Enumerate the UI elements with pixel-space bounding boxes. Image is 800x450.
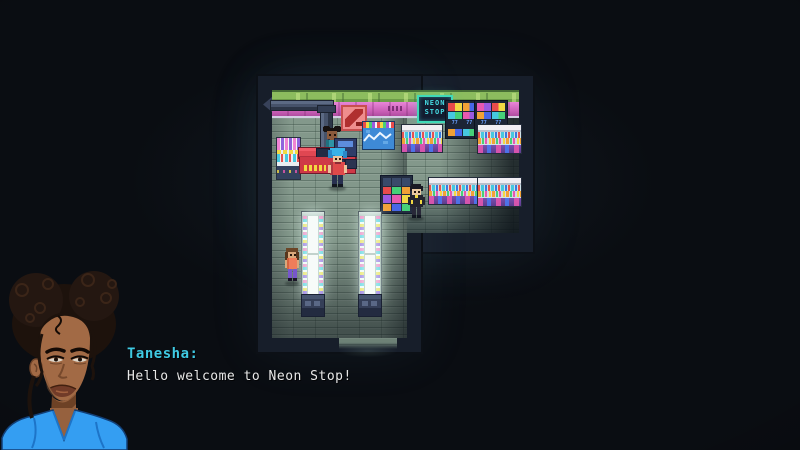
freezer-body bbox=[301, 216, 325, 296]
wall-graffiti bbox=[388, 106, 403, 111]
fridge-bottles bbox=[277, 138, 300, 150]
game-viewport[interactable]: NEON STOP 7777 7777 bbox=[0, 0, 800, 450]
pipe-joint bbox=[317, 105, 336, 113]
freezer-base bbox=[358, 294, 382, 317]
shelf-row bbox=[478, 191, 521, 197]
freezer-products bbox=[360, 216, 364, 296]
snack-item bbox=[392, 178, 400, 186]
npc-customer-bluehair bbox=[326, 148, 348, 188]
npc-shopper-left bbox=[283, 248, 301, 284]
snack-item bbox=[383, 187, 391, 195]
map-wave-graphic bbox=[363, 128, 392, 147]
shelf-top-center bbox=[401, 124, 443, 153]
snack-item bbox=[392, 187, 400, 195]
rack-item bbox=[477, 112, 491, 120]
doorway-light-spill bbox=[328, 346, 408, 362]
freezer-body bbox=[358, 216, 382, 296]
shelf-top-right bbox=[477, 124, 522, 154]
snack-item bbox=[392, 204, 400, 212]
snack-item bbox=[383, 178, 391, 186]
rack-item bbox=[448, 112, 462, 120]
shelf-front bbox=[402, 144, 442, 152]
rack-item bbox=[448, 103, 462, 111]
freezer-products bbox=[319, 216, 323, 296]
shelf-front bbox=[478, 145, 521, 153]
rack-item bbox=[492, 103, 506, 111]
rack-item bbox=[477, 103, 491, 111]
shelf-front bbox=[429, 196, 479, 204]
freezer-aisle-right bbox=[358, 211, 382, 317]
rack-price-tag: 77 bbox=[448, 120, 462, 128]
fridge-base bbox=[277, 166, 300, 179]
freezer-light bbox=[365, 216, 375, 296]
freezer-light bbox=[308, 216, 318, 296]
counter-price-stickers bbox=[302, 165, 326, 171]
dialogue-text[interactable]: Hello welcome to Neon Stop! bbox=[127, 369, 352, 384]
fridge-cans bbox=[277, 154, 300, 162]
snack-item bbox=[383, 195, 391, 203]
dialogue-speaker-name[interactable]: Tanesha: bbox=[127, 346, 198, 362]
shelf-row bbox=[478, 138, 521, 144]
freezer-base bbox=[301, 294, 325, 317]
rack-item bbox=[492, 112, 506, 120]
shelf-top bbox=[402, 125, 442, 132]
shelf-front bbox=[478, 198, 521, 206]
snack-item bbox=[383, 204, 391, 212]
freezer-products bbox=[303, 216, 307, 296]
shelf-top bbox=[478, 178, 521, 185]
rack-item bbox=[448, 129, 462, 137]
freezer-aisle-left bbox=[301, 211, 325, 317]
shelf-mid-right bbox=[477, 177, 522, 207]
shelf-top bbox=[429, 178, 479, 185]
freezer-products bbox=[376, 216, 380, 296]
shelf-top bbox=[478, 125, 521, 132]
npc-shopper-center bbox=[406, 184, 426, 218]
map-poster bbox=[362, 121, 395, 150]
portrait-tanesha bbox=[0, 270, 132, 450]
snack-item bbox=[392, 195, 400, 203]
shelf-island-center bbox=[428, 177, 480, 205]
